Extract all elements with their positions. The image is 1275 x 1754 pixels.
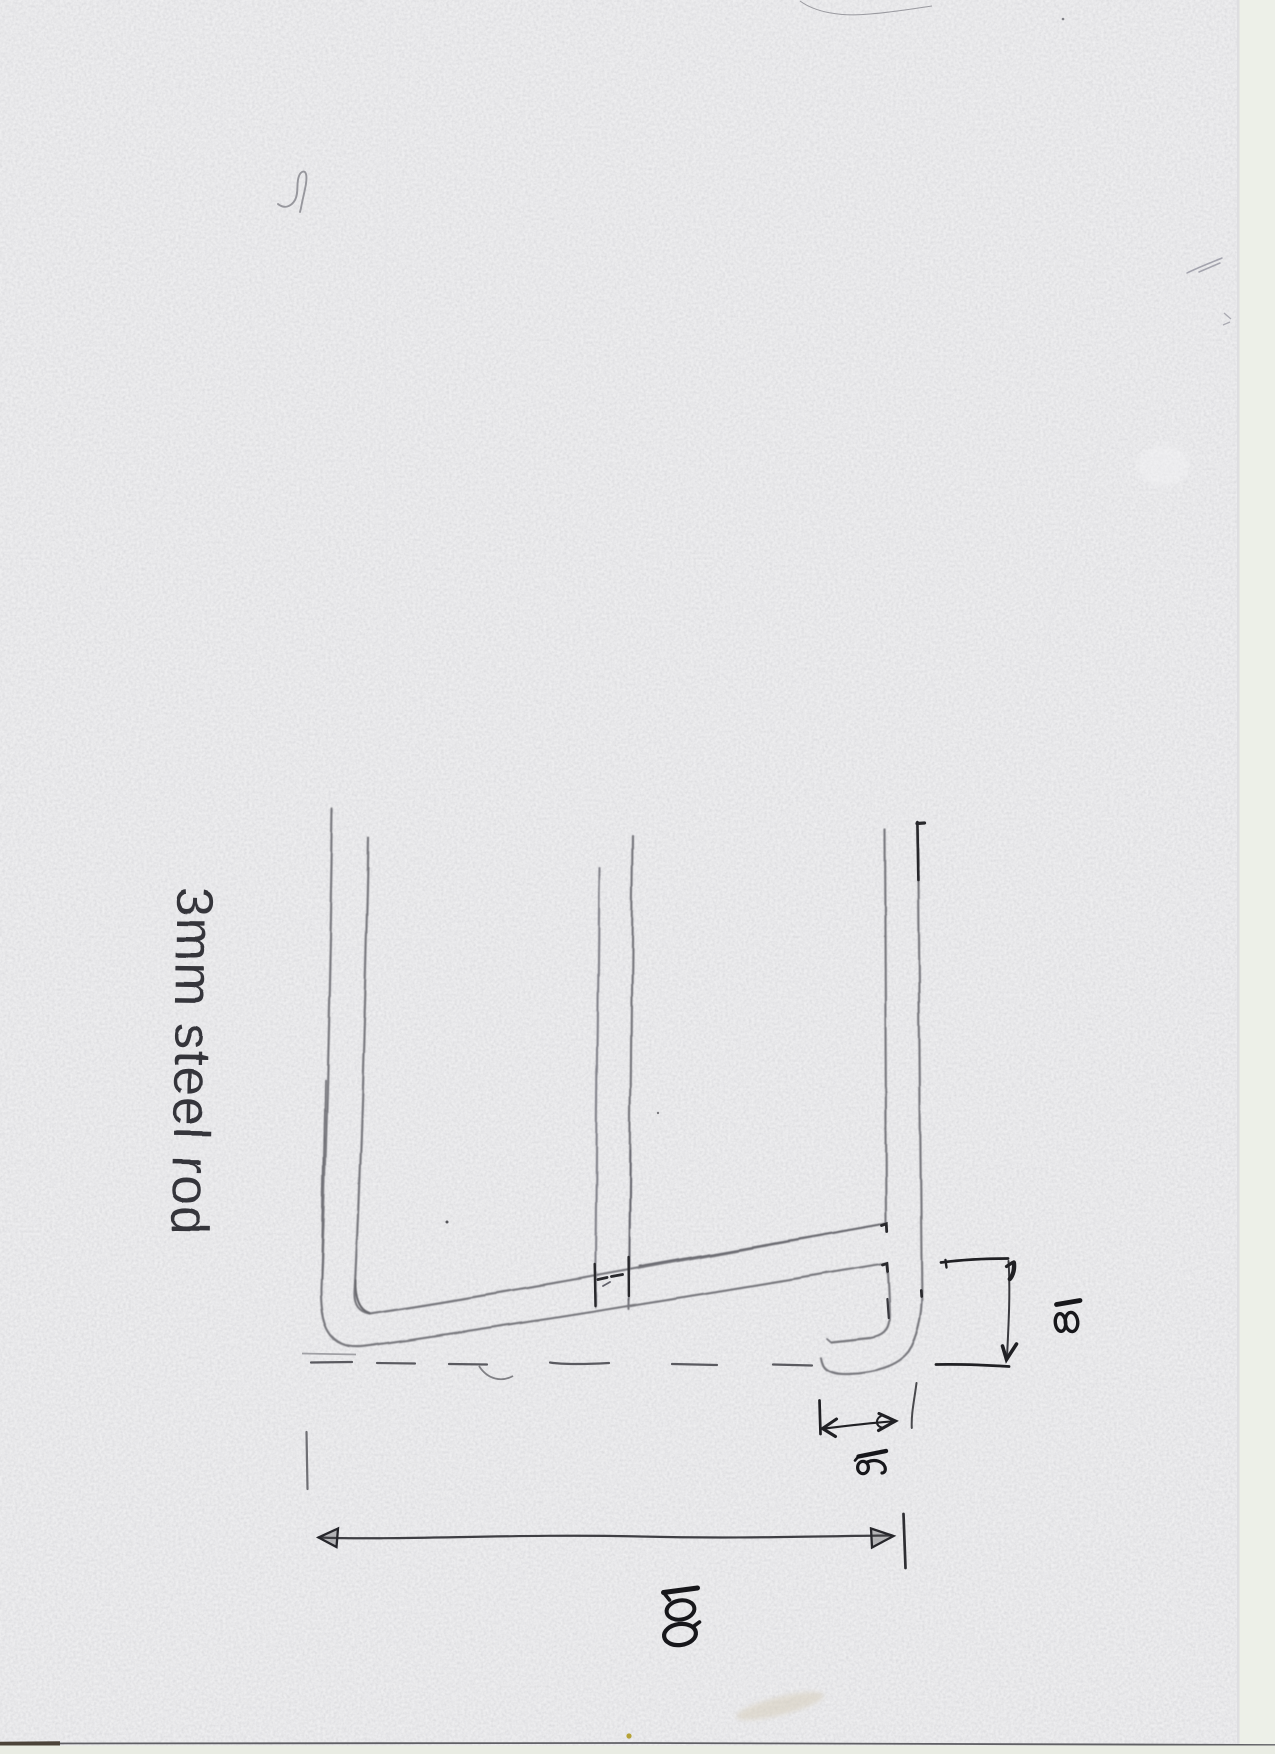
svg-text:3mm steel rod: 3mm steel rod (160, 887, 223, 1237)
